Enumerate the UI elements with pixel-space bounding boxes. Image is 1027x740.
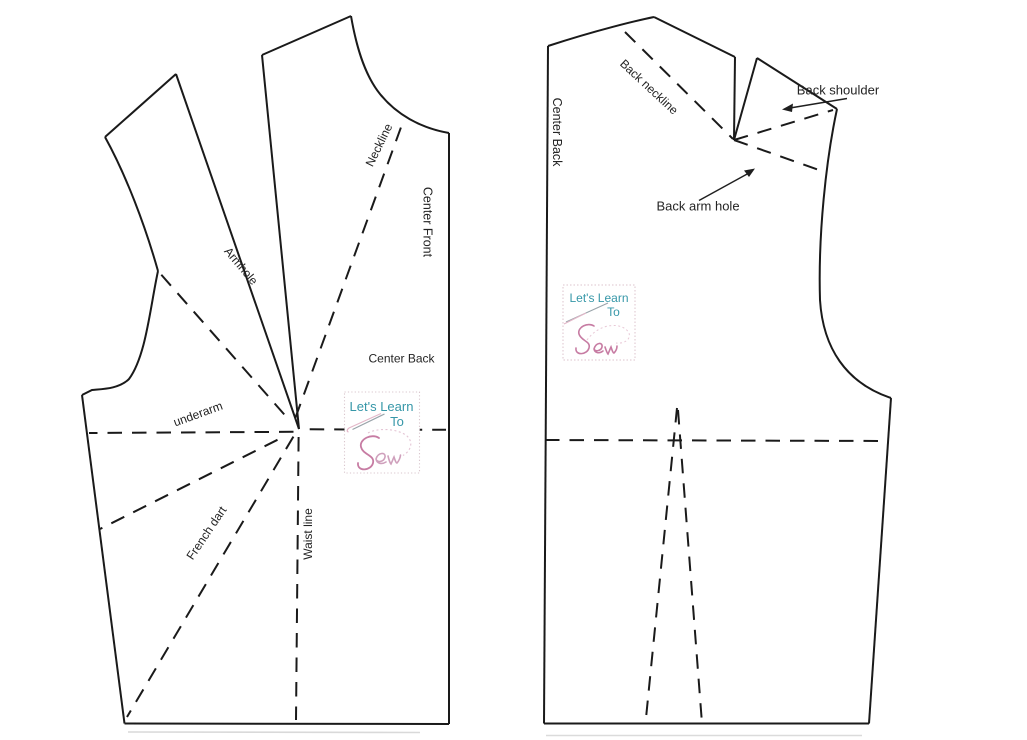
svg-text:Center Back: Center Back (368, 352, 435, 366)
svg-text:Center Front: Center Front (421, 187, 435, 258)
svg-text:To: To (607, 305, 620, 319)
svg-text:To: To (390, 414, 404, 429)
svg-text:Center Back: Center Back (550, 98, 564, 168)
svg-text:Back arm hole: Back arm hole (656, 199, 739, 214)
svg-text:Back shoulder: Back shoulder (797, 83, 880, 98)
svg-text:Let's Learn: Let's Learn (570, 291, 629, 305)
svg-text:Waist line: Waist line (301, 508, 315, 560)
svg-text:Let's Learn: Let's Learn (350, 399, 414, 414)
